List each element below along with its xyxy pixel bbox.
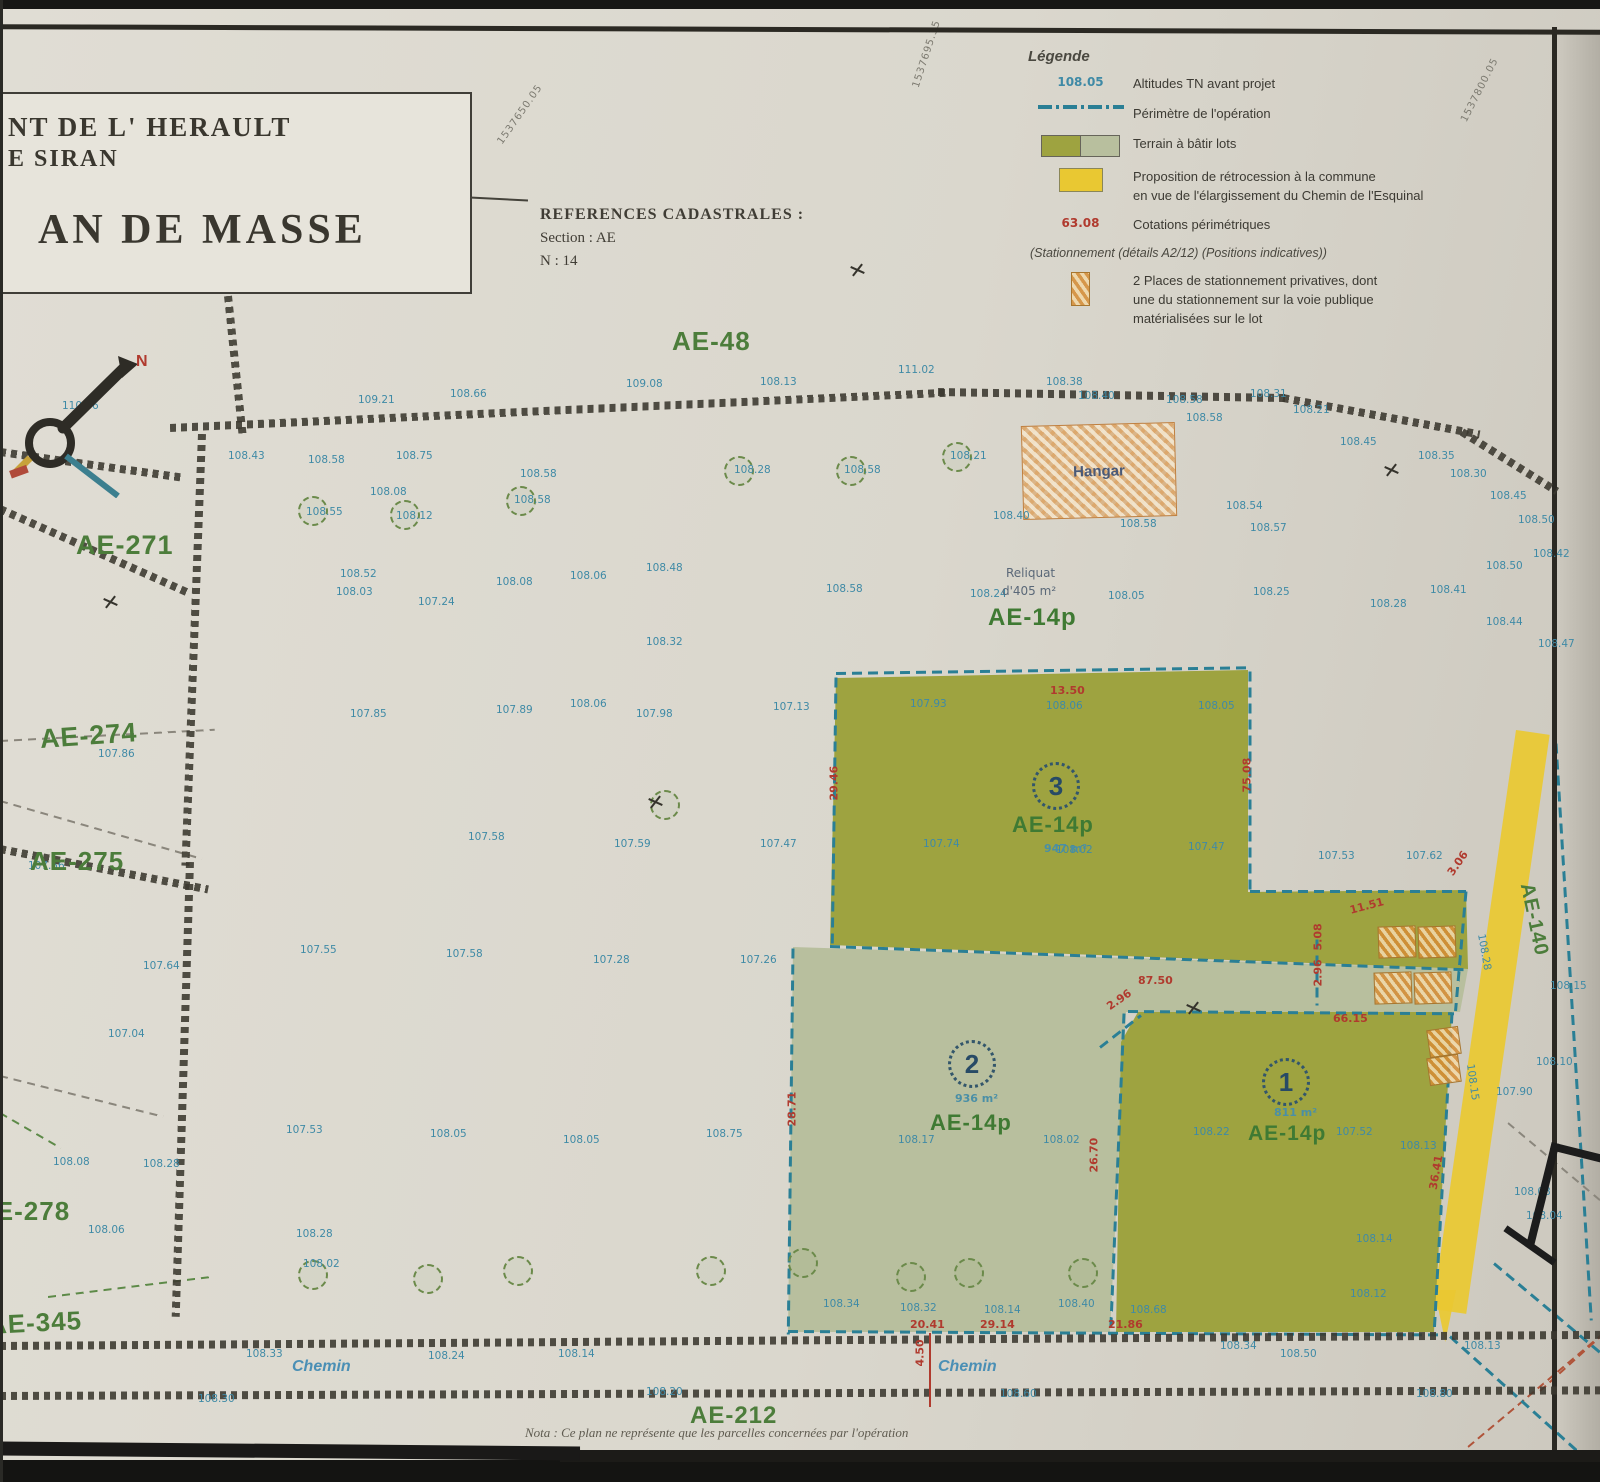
parking-space — [1417, 925, 1456, 958]
parking-space — [1373, 971, 1412, 1004]
bench-icon — [850, 264, 866, 276]
elevation-sample: 108.05 — [1057, 75, 1103, 89]
spot-height: 108.68 — [1130, 1304, 1167, 1316]
cotation-label: 2.96 — [1312, 959, 1325, 986]
cotation-label: 3.06 — [1445, 849, 1471, 879]
spot-height: 107.53 — [1318, 850, 1355, 862]
parking-space — [1377, 925, 1416, 958]
spot-height: 107.74 — [923, 838, 960, 850]
hangar-label: Hangar — [1073, 462, 1125, 480]
bench-icon — [103, 596, 119, 608]
plan-title: AN DE MASSE — [38, 206, 367, 254]
spot-height: 108.32 — [646, 636, 683, 648]
spot-height: 108.42 — [1533, 548, 1570, 560]
spot-height: 108.13 — [1464, 1340, 1501, 1352]
road-label-left: Chemin — [292, 1358, 351, 1376]
lot-3-area-label: 947 m² — [1044, 842, 1087, 855]
parking-swatch-icon — [1071, 272, 1090, 306]
spot-height: 107.13 — [773, 701, 810, 713]
lot-2-area-label: 936 m² — [955, 1092, 998, 1105]
boundary-wall-line — [1460, 429, 1559, 495]
bench-icon — [1186, 1002, 1202, 1014]
spot-height: 108.57 — [1250, 522, 1287, 534]
north-label: N — [136, 353, 148, 370]
spot-height: 107.89 — [496, 704, 533, 716]
spot-height: 108.58 — [1120, 518, 1157, 530]
parcel-label-ae-275: AE-275 — [30, 846, 124, 877]
reliquat-line1: Reliquat — [1006, 566, 1055, 580]
spot-height: 108.31 — [1250, 388, 1287, 400]
spot-height: 108.28 — [296, 1228, 333, 1240]
spot-height: 108.28 — [734, 464, 771, 476]
spot-height: 111.02 — [898, 364, 935, 376]
perimeter-dash-line — [1250, 890, 1466, 893]
spot-height: 108.05 — [1108, 590, 1145, 602]
spot-height: 107.59 — [614, 838, 651, 850]
spot-height: 108.54 — [1226, 500, 1263, 512]
spot-height: 108.06 — [88, 1224, 125, 1236]
spot-height: 107.90 — [1496, 1086, 1533, 1098]
cadastral-heading: REFERENCES CADASTRALES : — [540, 206, 804, 224]
cotation-label: 66.15 — [1333, 1012, 1368, 1025]
lot-1-area-label: 811 m² — [1274, 1106, 1317, 1119]
spot-height: 108.32 — [900, 1302, 937, 1314]
department-title: NT DE L' HERAULT — [8, 112, 291, 143]
legend-item-retrocession: Proposition de rétrocession à la commune… — [1028, 168, 1568, 206]
cadastral-numero: N : 14 — [540, 253, 804, 270]
cotation-label: 29.14 — [980, 1318, 1015, 1331]
spot-height: 108.50 — [1518, 514, 1555, 526]
spot-height: 108.38 — [1046, 376, 1083, 388]
cotation-label: 87.50 — [1138, 974, 1173, 987]
spot-height: 108.02 — [303, 1258, 340, 1270]
legend-title: Légende — [1028, 48, 1568, 65]
spot-height: 108.58 — [1186, 412, 1223, 424]
cotation-label: 21.86 — [1108, 1318, 1143, 1331]
spot-height: 108.14 — [984, 1304, 1021, 1316]
spot-height: 108.45 — [1340, 436, 1377, 448]
spot-height: 108.06 — [570, 570, 607, 582]
spot-height: 108.30 — [1450, 468, 1487, 480]
spot-height: 108.28 — [143, 1158, 180, 1170]
spot-height: 107.58 — [468, 831, 505, 843]
boundary-wall-line — [224, 296, 247, 438]
tree-icon — [1068, 1258, 1098, 1288]
tree-icon — [954, 1258, 984, 1288]
spot-height: 108.22 — [1193, 1126, 1230, 1138]
commune-title: E SIRAN — [8, 146, 119, 173]
tree-icon — [413, 1264, 443, 1294]
parcel-label-ae-48: AE-48 — [672, 326, 751, 357]
spot-height: 107.04 — [108, 1028, 145, 1040]
lot-3-number: 3 — [1032, 762, 1080, 810]
spot-height: 107.47 — [760, 838, 797, 850]
spot-height: 108.34 — [823, 1298, 860, 1310]
spot-height: 108.58 — [520, 468, 557, 480]
boundary-wall-line — [0, 1331, 1600, 1350]
cotation-label: 29.46 — [828, 766, 841, 801]
spot-height: 108.05 — [1198, 700, 1235, 712]
plan-de-masse-scan: Hangar 110.46109.21108.66109.08108.13111… — [0, 0, 1600, 1482]
cotation-label: 26.70 — [1088, 1138, 1101, 1173]
cotation-label: 28.71 — [786, 1092, 799, 1127]
spot-height: 107.98 — [636, 708, 673, 720]
spot-height: 108.60 — [1000, 1388, 1037, 1400]
spot-height: 108.08 — [370, 486, 407, 498]
spot-height: 107.52 — [1336, 1126, 1373, 1138]
spot-height: 107.85 — [350, 708, 387, 720]
boundary-wall-line — [172, 862, 194, 1317]
spot-height: 108.20 — [646, 1386, 683, 1398]
legend: Légende 108.05 Altitudes TN avant projet… — [1028, 48, 1568, 340]
legend-item-perimetre: Périmètre de l'opération — [1028, 105, 1568, 124]
spot-height: 108.45 — [1490, 490, 1527, 502]
photo-top-edge — [0, 0, 1600, 9]
lot-2-number: 2 — [948, 1040, 996, 1088]
bottom-note: Nota : Ce plan ne représente que les par… — [525, 1425, 1285, 1441]
spot-height: 108.40 — [1078, 390, 1115, 402]
cadastral-section: Section : AE — [540, 230, 804, 247]
spot-height: 107.64 — [143, 960, 180, 972]
cotation-label: 4.50 — [914, 1339, 927, 1366]
spot-height: 108.48 — [646, 562, 683, 574]
spot-height: 107.93 — [910, 698, 947, 710]
parcel-limit-line — [0, 1075, 163, 1118]
legend-item-parking: 2 Places de stationnement privatives, do… — [1028, 272, 1568, 329]
spot-height: 108.03 — [336, 586, 373, 598]
road-label-right: Chemin — [938, 1358, 997, 1376]
spot-height: 108.24 — [428, 1350, 465, 1362]
parcel-label-ae-345: AE-345 — [0, 1305, 83, 1341]
reliquat-parcel-label: AE-14p — [988, 604, 1077, 632]
spot-height: 108.58 — [514, 494, 551, 506]
spot-height: 108.52 — [340, 568, 377, 580]
bench-icon — [648, 796, 664, 808]
parking-space — [1413, 971, 1452, 1004]
legend-parking-note: (Stationnement (détails A2/12) (Position… — [1030, 246, 1568, 260]
lot-swatch-icon — [1041, 135, 1120, 157]
spot-height: 108.12 — [396, 510, 433, 522]
grid-coordinate-label: 1537650.05 — [495, 83, 544, 147]
dimension-tick-line — [929, 1333, 931, 1407]
cadastral-references: REFERENCES CADASTRALES : Section : AE N … — [540, 206, 804, 270]
spot-height: 108.66 — [450, 388, 487, 400]
spot-height: 108.08 — [53, 1156, 90, 1168]
spot-height: 108.80 — [1416, 1388, 1453, 1400]
spot-height: 108.21 — [1293, 404, 1330, 416]
spot-height: 108.05 — [430, 1128, 467, 1140]
spot-height: 107.47 — [1188, 841, 1225, 853]
spot-height: 108.43 — [228, 450, 265, 462]
spot-height: 108.13 — [760, 376, 797, 388]
spot-height: 108.02 — [1043, 1134, 1080, 1146]
spot-height: 108.34 — [1220, 1340, 1257, 1352]
boundary-wall-line — [1282, 394, 1480, 438]
spot-height: 108.55 — [306, 506, 343, 518]
spot-height: 108.28 — [1370, 598, 1407, 610]
spot-height: 108.40 — [993, 510, 1030, 522]
spot-height: 107.53 — [286, 1124, 323, 1136]
spot-height: 107.24 — [418, 596, 455, 608]
spot-height: 108.21 — [950, 450, 987, 462]
reliquat-line2: d'405 m² — [1002, 584, 1056, 598]
spot-height: 108.58 — [1166, 394, 1203, 406]
spot-height: 108.58 — [844, 464, 881, 476]
lot-1-number: 1 — [1262, 1058, 1310, 1106]
spot-height: 108.58 — [826, 583, 863, 595]
spot-height: 107.55 — [300, 944, 337, 956]
north-arrow-icon: N — [8, 348, 168, 498]
spot-height: 107.26 — [740, 954, 777, 966]
cotation-sample: 63.08 — [1062, 216, 1100, 230]
spot-height: 108.15 — [1550, 980, 1587, 992]
lot-3-parcel-label: AE-14p — [1012, 812, 1094, 838]
tree-icon — [503, 1256, 533, 1286]
green-limit-line — [0, 1112, 61, 1149]
bench-icon — [1384, 464, 1400, 476]
cotation-label: 5.08 — [1312, 923, 1325, 950]
tree-icon — [788, 1248, 818, 1278]
legend-item-altitudes: 108.05 Altitudes TN avant projet — [1028, 75, 1568, 94]
parking-space — [1426, 1054, 1462, 1086]
spot-height: 108.30 — [198, 1393, 235, 1405]
spot-height: 108.06 — [1046, 700, 1083, 712]
green-limit-line — [48, 1276, 212, 1298]
spot-height: 108.47 — [1538, 638, 1575, 650]
boundary-wall-line — [0, 1386, 1600, 1400]
spot-height: 108.13 — [1400, 1140, 1437, 1152]
legend-item-lots: Terrain à bâtir lots — [1028, 135, 1568, 157]
tree-icon — [696, 1256, 726, 1286]
spot-height: 108.14 — [558, 1348, 595, 1360]
spot-height: 108.41 — [1430, 584, 1467, 596]
spot-height: 108.50 — [1486, 560, 1523, 572]
parcel-label-ae-278: AE-278 — [0, 1196, 70, 1227]
photo-left-edge — [0, 0, 3, 1482]
title-block: NT DE L' HERAULT E SIRAN AN DE MASSE — [0, 92, 472, 294]
legend-item-cotations: 63.08 Cotations périmétriques — [1028, 216, 1568, 235]
spot-height: 109.08 — [626, 378, 663, 390]
hangar-area: Hangar — [1021, 422, 1177, 520]
cotation-label: 20.41 — [910, 1318, 945, 1331]
spot-height: 108.25 — [1253, 586, 1290, 598]
spot-height: 108.75 — [396, 450, 433, 462]
spot-height: 108.06 — [570, 698, 607, 710]
cotation-label: 75.08 — [1241, 758, 1254, 793]
lot-1-parcel-label: AE-14p — [1248, 1122, 1326, 1146]
spot-height: 108.40 — [1058, 1298, 1095, 1310]
boundary-wall-line — [170, 389, 948, 432]
spot-height: 108.14 — [1356, 1233, 1393, 1245]
spot-height: 107.62 — [1406, 850, 1443, 862]
spot-height: 108.08 — [496, 576, 533, 588]
spot-height: 108.58 — [308, 454, 345, 466]
spot-height: 108.05 — [563, 1134, 600, 1146]
spot-height: 108.12 — [1350, 1288, 1387, 1300]
photo-bottom-edge-2 — [560, 1450, 1600, 1462]
photo-bottom-edge — [0, 1460, 1600, 1482]
spot-height: 109.21 — [358, 394, 395, 406]
spot-height: 108.33 — [246, 1348, 283, 1360]
tree-icon — [896, 1262, 926, 1292]
spot-height: 107.28 — [593, 954, 630, 966]
cotation-label: 13.50 — [1050, 684, 1085, 697]
spot-height: 108.44 — [1486, 616, 1523, 628]
lot-2-parcel-label: AE-14p — [930, 1110, 1012, 1136]
spot-height: 108.75 — [706, 1128, 743, 1140]
spot-height: 108.35 — [1418, 450, 1455, 462]
retrocession-swatch-icon — [1059, 168, 1103, 192]
spot-height: 108.10 — [1536, 1056, 1573, 1068]
spot-height: 108.50 — [1280, 1348, 1317, 1360]
parcel-label-ae-271: AE-271 — [76, 530, 174, 561]
perimeter-line-icon — [1038, 105, 1124, 109]
spot-height: 107.58 — [446, 948, 483, 960]
boundary-wall-line — [181, 434, 206, 866]
